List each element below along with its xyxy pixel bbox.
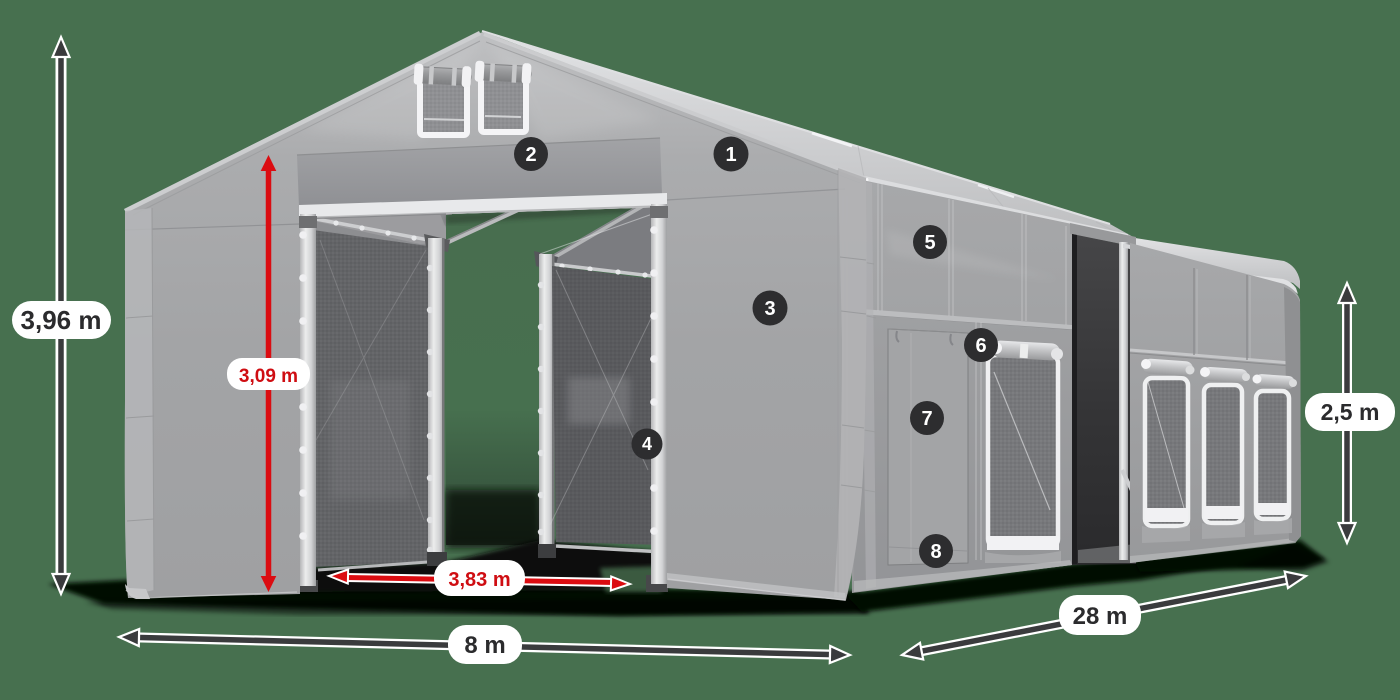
svg-text:2: 2	[525, 144, 536, 166]
svg-text:28 m: 28 m	[1073, 603, 1128, 630]
svg-text:8 m: 8 m	[464, 632, 505, 659]
svg-text:3,96 m: 3,96 m	[21, 305, 102, 335]
svg-text:1: 1	[725, 144, 736, 166]
svg-text:6: 6	[975, 335, 986, 357]
svg-text:2,5 m: 2,5 m	[1321, 399, 1380, 425]
svg-text:5: 5	[924, 232, 935, 254]
svg-text:4: 4	[642, 434, 652, 454]
svg-text:3: 3	[764, 298, 775, 320]
svg-text:3,83 m: 3,83 m	[448, 569, 510, 591]
svg-text:7: 7	[921, 408, 932, 430]
svg-text:8: 8	[930, 541, 941, 563]
svg-text:3,09 m: 3,09 m	[239, 366, 298, 387]
